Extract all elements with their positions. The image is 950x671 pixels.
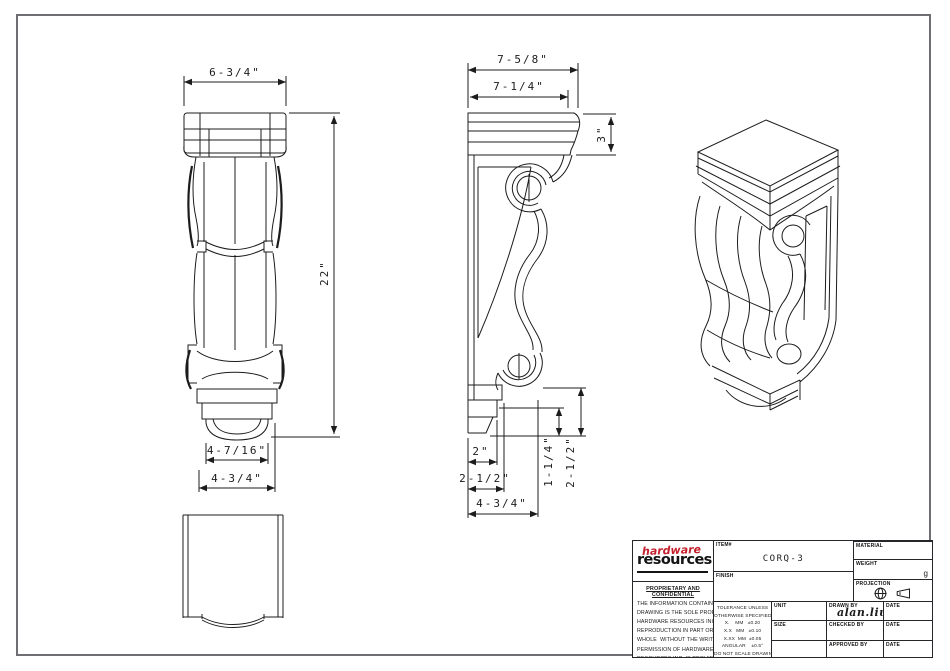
- tolerance-line: OTHERWISE SPECIFIED: [714, 613, 771, 621]
- date-label: DATE: [886, 603, 900, 609]
- title-block: hardware resources PROPRIETARY AND CONFI…: [632, 540, 933, 658]
- proprietary-line: PERMISSION OF HARDWARE: [637, 646, 713, 655]
- front-bottom-outer-dim-label: 4-3/4": [211, 472, 263, 485]
- side-foot-c-dim-label: 4-3/4": [476, 497, 528, 510]
- logo-cell: hardware resources: [633, 541, 713, 581]
- unit-label: UNIT: [774, 603, 786, 609]
- isometric-view: [695, 120, 840, 410]
- date-cell-1: DATE: [883, 601, 932, 620]
- proprietary-line: REPRODUCTION IN PART OR AS A: [637, 627, 713, 636]
- tolerance-line: TOLERANCE UNLESS: [714, 605, 771, 613]
- side-rise-a-dim-label: 1-1/4": [542, 435, 555, 487]
- tolerance-line: ANGULAR ±0.5°: [714, 643, 771, 651]
- drawing-sheet: 6-3/4" 22" 4-7/16" 4-3/4": [0, 0, 950, 671]
- proprietary-heading: PROPRIETARY AND CONFIDENTIAL: [635, 586, 711, 598]
- side-foot-b-dim-label: 2-1/2": [459, 472, 511, 485]
- proprietary-line: DRAWING IS THE SOLE PROPERTY OF: [637, 609, 713, 618]
- side-view: [468, 113, 580, 433]
- projection-symbols: [874, 587, 911, 600]
- unit-cell: UNIT: [771, 601, 826, 620]
- globe-projection-icon: [874, 587, 887, 600]
- weight-label: WEIGHT: [856, 561, 877, 567]
- tolerance-cell: TOLERANCE UNLESS OTHERWISE SPECIFIED X. …: [713, 601, 771, 657]
- proprietary-line: THE INFORMATION CONTAINED IN THIS: [637, 600, 713, 609]
- proprietary-line: HARDWARE RESOURCES INC. ANY: [637, 618, 713, 627]
- blank-cell: [771, 640, 826, 657]
- side-depth-outer-dim-label: 7-5/8": [497, 53, 549, 66]
- date-cell-3: DATE: [883, 640, 932, 657]
- side-rise-b-dim-label: 2-1/2": [564, 436, 577, 488]
- proprietary-cell: PROPRIETARY AND CONFIDENTIAL THE INFORMA…: [633, 581, 713, 657]
- weight-cell: WEIGHT g: [853, 559, 932, 579]
- logo-word-resources: resources: [637, 552, 712, 568]
- finish-label: FINISH: [716, 573, 734, 579]
- finish-cell: FINISH: [713, 571, 853, 601]
- drawn-by-cell: DRAWN BY alan.liu: [826, 601, 883, 620]
- front-width-dim-label: 6-3/4": [209, 66, 261, 79]
- weight-unit: g: [924, 569, 928, 578]
- item-cell: ITEM# CORQ-3: [713, 541, 853, 571]
- bottom-view: [183, 515, 283, 628]
- proprietary-line: WHOLE WITHOUT THE WRITTEN: [637, 636, 713, 645]
- approved-by-label: APPROVED BY: [829, 642, 868, 648]
- projection-cell: PROJECTION: [853, 579, 932, 601]
- date-label: DATE: [886, 642, 900, 648]
- side-depth-inner-dim-label: 7-1/4": [493, 80, 545, 93]
- date-cell-2: DATE: [883, 620, 932, 640]
- material-label: MATERIAL: [856, 543, 883, 549]
- frustum-projection-icon: [896, 588, 911, 599]
- item-label: ITEM#: [716, 542, 732, 548]
- front-bottom-inner-dim-label: 4-7/16": [207, 444, 267, 457]
- proprietary-line: RESOURCES INC IS PROHIBITED: [637, 655, 713, 657]
- material-cell: MATERIAL: [853, 541, 932, 559]
- size-label: SIZE: [774, 622, 786, 628]
- checked-by-cell: CHECKED BY: [826, 620, 883, 640]
- front-view: [184, 113, 286, 440]
- tolerance-line: X.X MM ±0.10: [714, 628, 771, 636]
- side-foot-a-dim-label: 2": [472, 445, 489, 458]
- tolerance-line: X.XX MM ±0.05: [714, 636, 771, 644]
- checked-by-label: CHECKED BY: [829, 622, 864, 628]
- tolerance-line: X. MM ±0.20: [714, 620, 771, 628]
- approved-by-cell: APPROVED BY: [826, 640, 883, 657]
- front-height-dim-label: 22": [318, 260, 331, 286]
- side-cap-height-dim-label: 3": [595, 125, 608, 142]
- size-cell: SIZE: [771, 620, 826, 640]
- logo-underline: [637, 571, 708, 573]
- item-number: CORQ-3: [714, 554, 853, 564]
- drawn-by-signature: alan.liu: [837, 606, 883, 619]
- date-label: DATE: [886, 622, 900, 628]
- tolerance-line: DO NOT SCALE DRAWING: [714, 651, 771, 657]
- front-view-dimensions: [184, 76, 340, 492]
